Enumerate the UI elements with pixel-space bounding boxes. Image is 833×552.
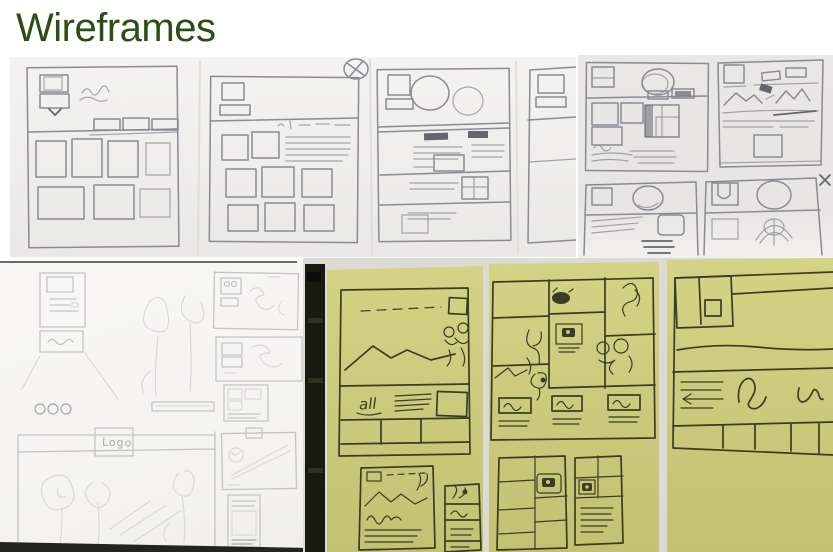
sticky-sketch-canvas: all (303, 258, 833, 552)
sketch-wf2 (718, 60, 823, 167)
sketch-wireframe-c (377, 68, 511, 241)
sketch-wireframe-b (209, 59, 368, 243)
sketch-wf1 (586, 62, 709, 171)
sketch-hero-wireframe: Logo (18, 428, 215, 548)
pencil-sketch-canvas-2 (578, 55, 833, 258)
sketch-wf3 (584, 182, 698, 255)
sticky-note-1: all (327, 266, 483, 552)
wireframe-photo-sticky-notes: all (303, 258, 833, 552)
all-label: all (359, 395, 378, 414)
sticky-note-3 (667, 258, 833, 552)
pencil-sketch-canvas-3: Logo (0, 261, 310, 552)
sketch-wf4 (704, 175, 830, 255)
slide: Wireframes (0, 0, 833, 552)
wireframe-photo-pencil-large (10, 57, 576, 257)
pencil-sketch-canvas (10, 57, 576, 257)
wireframe-photo-pencil-faint: Logo (0, 261, 310, 552)
notebook-spine (305, 264, 325, 552)
sketch-wireframe-a (27, 66, 179, 248)
logo-label: Logo (102, 436, 133, 450)
page-title: Wireframes (16, 6, 215, 50)
sketch-wireframe-d-partial (528, 67, 576, 243)
sketch-right-cards (214, 272, 302, 421)
sticky-note-2 (489, 262, 659, 552)
sketch-flowers-faint (142, 296, 204, 396)
sketch-side-menu (22, 273, 118, 399)
wireframe-photo-pencil-small (578, 55, 833, 258)
photo-shadow-edge (0, 542, 310, 552)
sketch-pagination-row (35, 402, 214, 414)
sketch-right-cards-lower (222, 428, 297, 547)
